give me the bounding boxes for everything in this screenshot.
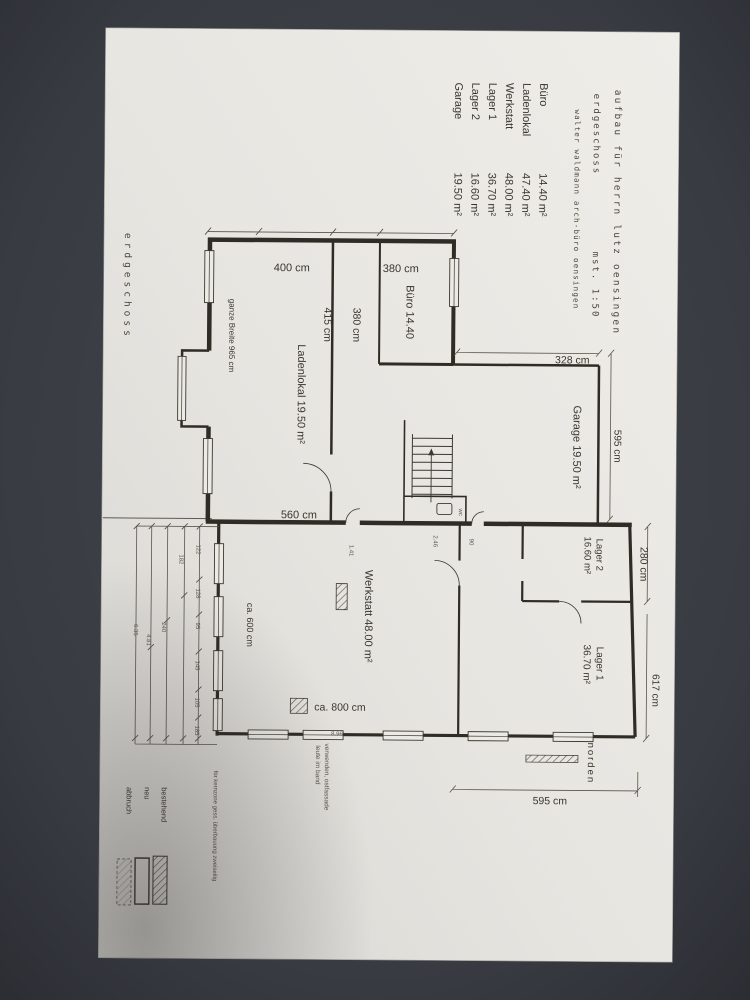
scan-canvas: Büro 14.40 m² Ladenlokal 47.40 m² Werkst… bbox=[0, 0, 750, 1000]
photo-of-scanned-floor-plan: { "colors": {"background":"#383b42","pap… bbox=[0, 0, 750, 1000]
paper-sheet: Büro 14.40 m² Ladenlokal 47.40 m² Werkst… bbox=[98, 28, 679, 962]
paper-shading bbox=[98, 28, 679, 962]
